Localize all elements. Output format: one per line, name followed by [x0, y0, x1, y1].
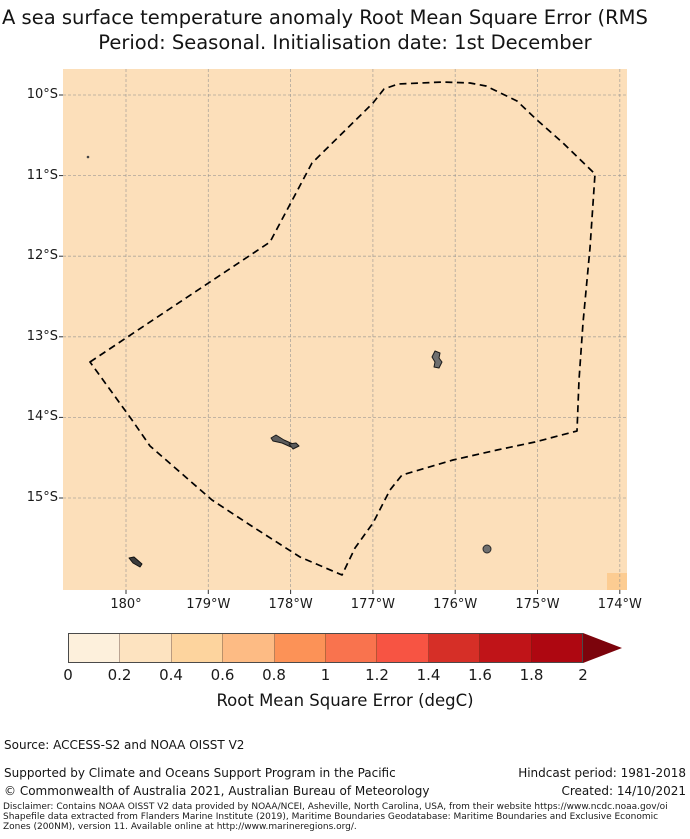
x-tick-174°W: 174°W	[590, 597, 650, 612]
colorbar-label: Root Mean Square Error (degC)	[0, 691, 690, 710]
colorbar-tick-0: 0	[46, 666, 90, 684]
colorbar-tick-1.6: 1.6	[458, 666, 502, 684]
y-tick-11°S: 11°S	[0, 168, 58, 183]
colorbar-segment-10	[532, 634, 582, 662]
colorbar-segment-5	[275, 634, 326, 662]
x-tick-175°W: 175°W	[508, 597, 568, 612]
high-rmse-cell	[607, 573, 627, 590]
colorbar-segment-6	[326, 634, 377, 662]
x-tick-178°W: 178°W	[261, 597, 321, 612]
figure-title: A sea surface temperature anomaly Root M…	[2, 6, 648, 29]
colorbar-tick-0.6: 0.6	[201, 666, 245, 684]
colorbar-segment-1	[69, 634, 120, 662]
map-plot-area	[63, 69, 627, 590]
y-tick-14°S: 14°S	[0, 409, 58, 424]
colorbar-tick-2: 2	[561, 666, 605, 684]
colorbar-segment-3	[172, 634, 223, 662]
y-tick-10°S: 10°S	[0, 87, 58, 102]
disclaimer-line-3: Zones (200NM), version 11. Available onl…	[3, 823, 690, 833]
x-tick-179°W: 179°W	[178, 597, 238, 612]
colorbar-tick-0.4: 0.4	[149, 666, 193, 684]
x-tick-176°W: 176°W	[425, 597, 485, 612]
colorbar-segment-4	[223, 634, 274, 662]
colorbar-tick-0.2: 0.2	[98, 666, 142, 684]
colorbar-extend-arrow	[583, 633, 622, 663]
copyright-text: © Commonwealth of Australia 2021, Austra…	[4, 784, 429, 798]
supported-by-text: Supported by Climate and Oceans Support …	[4, 766, 396, 780]
x-tick-180°: 180°	[96, 597, 156, 612]
y-tick-12°S: 12°S	[0, 248, 58, 263]
colorbar-tick-0.8: 0.8	[252, 666, 296, 684]
source-text: Source: ACCESS-S2 and NOAA OISST V2	[4, 738, 244, 752]
disclaimer-text: Disclaimer: Contains NOAA OISST V2 data …	[3, 803, 690, 832]
created-date-text: Created: 14/10/2021	[561, 784, 686, 798]
colorbar-segment-2	[120, 634, 171, 662]
colorbar-tick-1.2: 1.2	[355, 666, 399, 684]
colorbar-tick-1.4: 1.4	[407, 666, 451, 684]
colorbar-segment-8	[429, 634, 480, 662]
figure-subtitle: Period: Seasonal. Initialisation date: 1…	[0, 31, 690, 54]
hindcast-period-text: Hindcast period: 1981-2018	[518, 766, 686, 780]
y-tick-15°S: 15°S	[0, 490, 58, 505]
colorbar-tick-1.8: 1.8	[510, 666, 554, 684]
colorbar-segment-7	[377, 634, 428, 662]
colorbar	[68, 633, 583, 663]
figure-canvas: { "title": { "line1": "A sea surface tem…	[0, 0, 690, 839]
y-tick-13°S: 13°S	[0, 329, 58, 344]
colorbar-tick-1: 1	[304, 666, 348, 684]
colorbar-segment-9	[480, 634, 531, 662]
x-tick-177°W: 177°W	[343, 597, 403, 612]
